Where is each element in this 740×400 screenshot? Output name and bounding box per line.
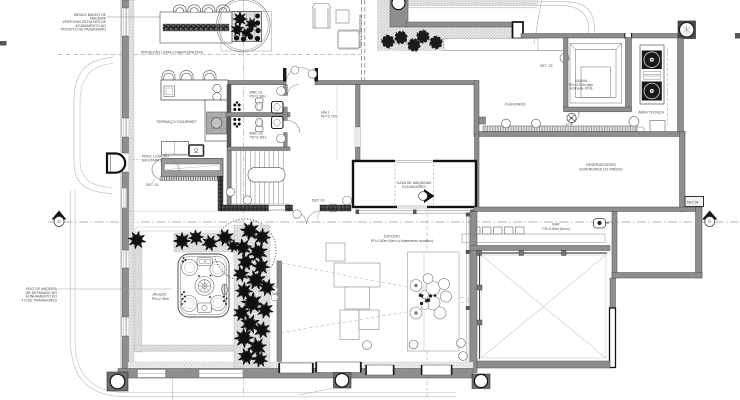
svg-text:PROJETO DE PAISAGISMO: PROJETO DE PAISAGISMO — [61, 27, 106, 31]
svg-text:ELEVADORES: ELEVADORES — [402, 185, 426, 189]
svg-text:PROJEÇÃO LINHA COBERTURA FIXA: PROJEÇÃO LINHA COBERTURA FIXA — [141, 50, 203, 55]
svg-text:DET.04: DET.04 — [687, 201, 699, 205]
svg-text:PD=2.35m: PD=2.35m — [152, 297, 169, 301]
svg-text:PD=2.80m (forro c/ tratamento: PD=2.80m (forro c/ tratamento acústico) — [371, 239, 433, 243]
svg-text:PD=2.75m: PD=2.75m — [321, 114, 338, 118]
svg-text:DET. 03: DET. 03 — [312, 199, 325, 203]
svg-text:ÁREA TÉCNICA: ÁREA TÉCNICA — [638, 110, 664, 115]
svg-text:SUPERIORES DO PRÉDIO: SUPERIORES DO PRÉDIO — [579, 167, 623, 172]
svg-text:TIJ DE TRAVADORES: TIJ DE TRAVADORES — [22, 298, 58, 302]
svg-text:EM ETAPA 2: EM ETAPA 2 — [142, 158, 162, 162]
svg-text:PD=2.80m (forro): PD=2.80m (forro) — [542, 227, 569, 231]
svg-text:DET. 03: DET. 03 — [540, 64, 553, 68]
svg-text:PROJ. COBERTURA: PROJ. COBERTURA — [359, 14, 363, 48]
svg-text:TERRAÇO GOURMET: TERRAÇO GOURMET — [156, 119, 198, 124]
svg-text:PD=2.30H: PD=2.30H — [250, 135, 267, 139]
svg-text:CHUVEIROS: CHUVEIROS — [505, 103, 526, 107]
svg-text:DET. 01: DET. 01 — [146, 183, 159, 187]
svg-text:inclinada 10%): inclinada 10%) — [570, 87, 593, 91]
svg-text:RESERVATÓRIOS: RESERVATÓRIOS — [586, 162, 616, 167]
